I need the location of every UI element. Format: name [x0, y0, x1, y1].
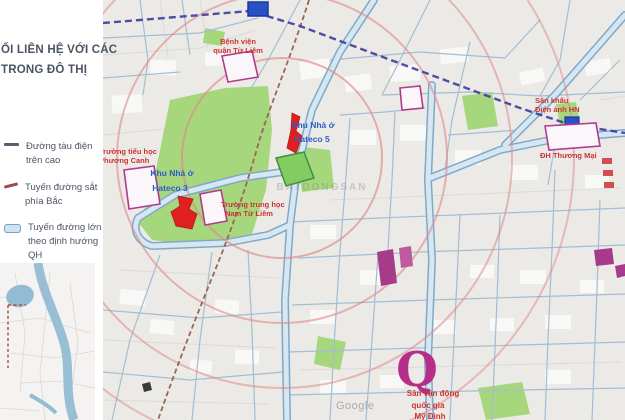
legend-item-north-railway: Tuyến đường sắt phía Bắc	[4, 181, 103, 209]
phuong-canh-label: Phương Canh	[99, 156, 150, 165]
nam-tu-liem-label: Trường trung học	[221, 200, 285, 209]
hateco3-label: Khu Nhà ở	[150, 168, 194, 178]
planned-road-icon	[4, 224, 21, 233]
thuong-mai-campus	[545, 123, 600, 150]
thuong-mai-label: ĐH Thương Mại	[540, 151, 597, 160]
legend-item-elevated-train: Đường tàu điện trên cao	[4, 140, 103, 168]
hateco3-label: Hateco 3	[152, 183, 188, 193]
urban-map-figure: Bệnh viện quận Từ Liêm Khu Nhà ở Hateco …	[0, 0, 625, 420]
google-watermark: Google	[336, 400, 374, 412]
legend-label: Đường tàu điện trên cao	[26, 140, 100, 168]
north-railway-line-icon	[4, 182, 18, 188]
nam-tu-liem-label: Nam Từ Liêm	[225, 209, 273, 218]
metro-station-icon	[248, 2, 268, 16]
hospital-label: Bệnh viện	[220, 37, 256, 46]
elevated-train-line-icon	[4, 143, 19, 146]
san-khau-label: Điện ảnh HN	[535, 105, 580, 114]
city-inset-map	[0, 263, 95, 420]
stadium-label: Mỹ Đình	[414, 412, 445, 420]
center-watermark: BATDONGSAN	[277, 182, 368, 193]
hateco5-label: Khu Nhà ở	[291, 120, 335, 130]
legend-label: Tuyến đường sắt phía Bắc	[25, 181, 99, 209]
legend-label: Tuyến đường lớn theo định hướng QH	[28, 221, 102, 262]
legend-panel: ỐI LIÊN HỆ VỚI CÁC TRONG ĐÔ THỊ Đường tà…	[0, 0, 103, 420]
panel-title-line: TRONG ĐÔ THỊ	[1, 60, 103, 80]
hospital-building	[222, 51, 258, 82]
phuong-canh-label: Trường tiểu học	[99, 147, 157, 156]
stadium-label: quốc gia	[412, 401, 445, 410]
hateco5-label: Hateco 5	[294, 134, 330, 144]
hospital-label: quận Từ Liêm	[213, 46, 263, 55]
stadium-label: Sân vận động	[407, 389, 460, 398]
panel-title: ỐI LIÊN HỆ VỚI CÁC TRONG ĐÔ THỊ	[1, 40, 103, 80]
panel-title-line: ỐI LIÊN HỆ VỚI CÁC	[1, 40, 103, 60]
san-khau-label: Sân khấu	[535, 96, 569, 105]
legend-item-planned-road: Tuyến đường lớn theo định hướng QH	[4, 221, 103, 262]
